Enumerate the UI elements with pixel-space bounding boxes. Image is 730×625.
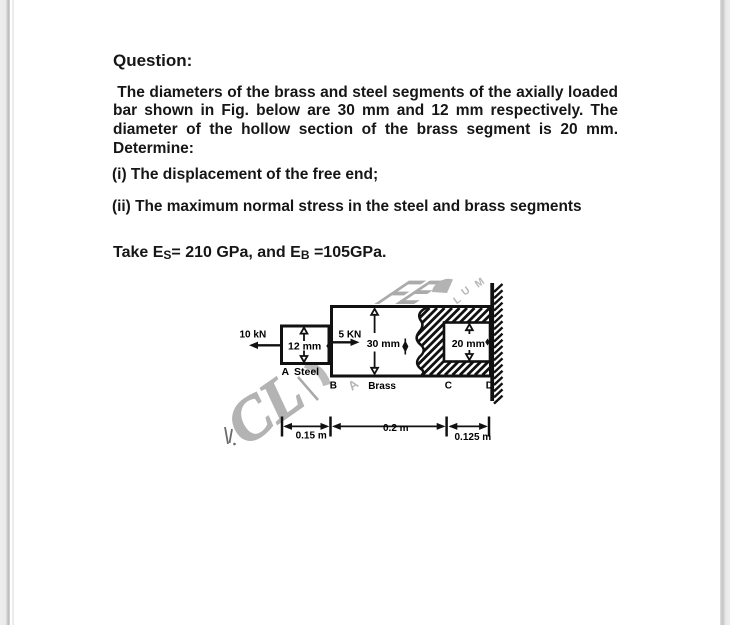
svg-text:A: A xyxy=(346,377,362,394)
svg-text:Steel: Steel xyxy=(294,366,319,378)
svg-text:Brass: Brass xyxy=(368,381,396,392)
svg-text:U: U xyxy=(459,284,472,298)
svg-text:5 KN: 5 KN xyxy=(339,330,362,341)
svg-text:12 mm: 12 mm xyxy=(288,340,321,352)
svg-text:30 mm: 30 mm xyxy=(367,338,400,350)
svg-text:M: M xyxy=(473,275,487,290)
svg-text:0.2 m: 0.2 m xyxy=(383,423,409,434)
svg-text:B: B xyxy=(330,380,337,391)
svg-text:0.15 m: 0.15 m xyxy=(296,431,327,442)
svg-text:20 mm: 20 mm xyxy=(452,338,485,350)
svg-text:L: L xyxy=(451,293,464,307)
svg-text:A: A xyxy=(282,366,290,378)
svg-text:0.125 m: 0.125 m xyxy=(455,432,492,443)
svg-text:C: C xyxy=(445,381,452,392)
svg-text:10 kN: 10 kN xyxy=(240,330,267,341)
